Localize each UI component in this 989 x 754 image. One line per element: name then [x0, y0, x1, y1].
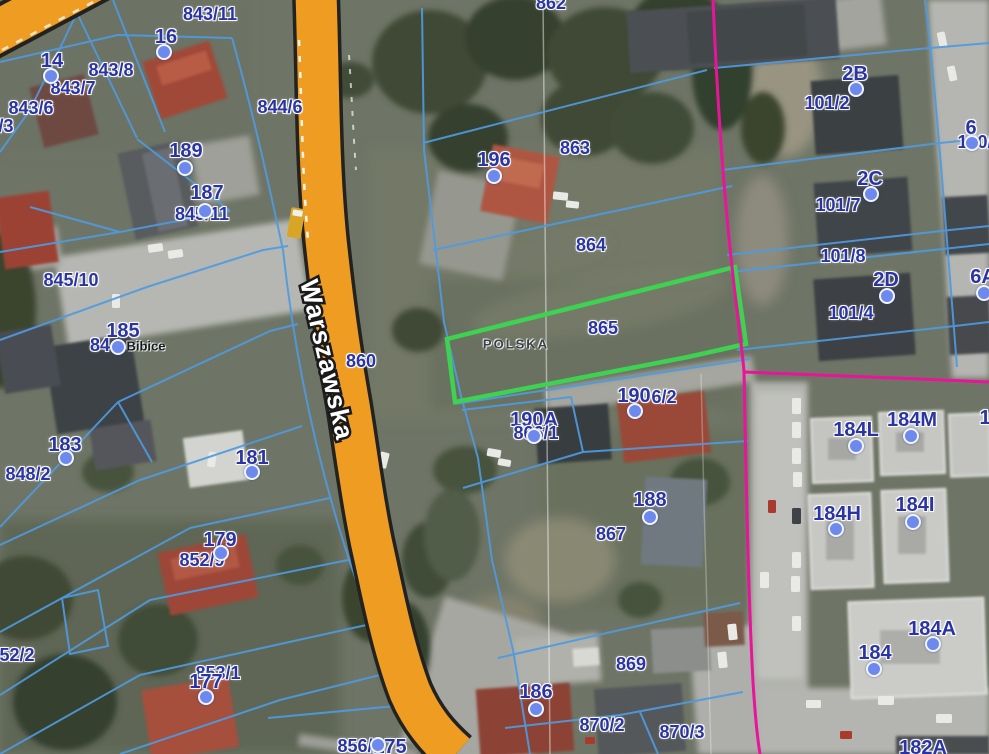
satellite-layer: Warszawska: [0, 0, 989, 754]
map-canvas[interactable]: Warszawska 843/111614843/8843/7843/6/384…: [0, 0, 989, 754]
